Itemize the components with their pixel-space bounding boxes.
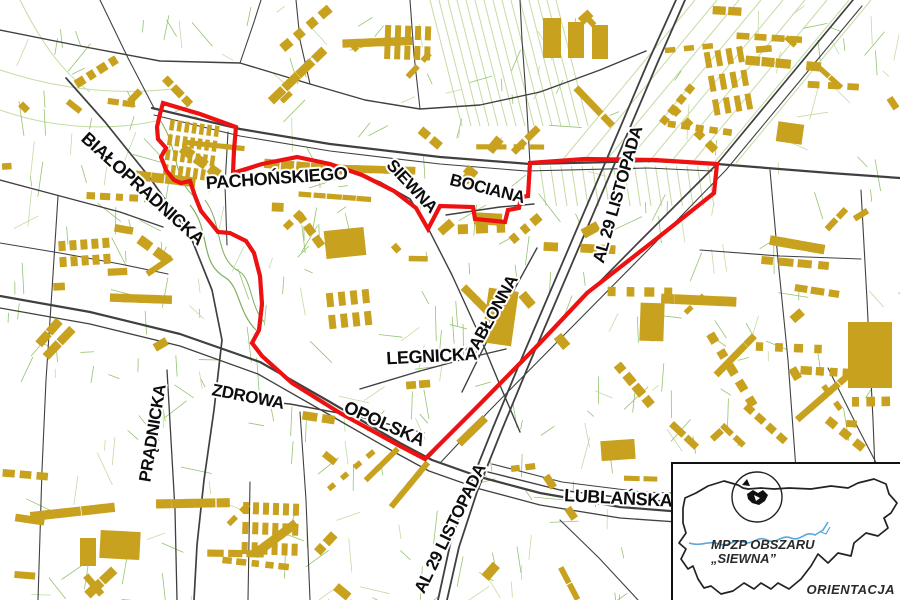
building (736, 32, 749, 39)
building (714, 50, 723, 67)
building (328, 315, 336, 330)
building (734, 95, 743, 112)
building (642, 395, 655, 408)
building (59, 257, 67, 267)
building (14, 571, 35, 580)
building (64, 506, 82, 517)
building (788, 366, 802, 381)
road (167, 370, 177, 600)
building (847, 83, 859, 90)
building (554, 333, 571, 350)
building (394, 45, 400, 59)
building (91, 238, 99, 248)
building (362, 289, 370, 304)
building (511, 465, 520, 472)
building (385, 25, 391, 39)
building (291, 544, 297, 556)
building (327, 482, 336, 491)
building (712, 99, 721, 116)
building (36, 472, 48, 481)
building (458, 224, 469, 234)
building (568, 22, 584, 58)
building (107, 98, 119, 106)
building (661, 294, 675, 304)
building (70, 256, 78, 266)
building (206, 124, 212, 136)
building (340, 313, 348, 328)
building (776, 432, 788, 444)
building (720, 296, 736, 306)
building (322, 451, 338, 465)
building (352, 312, 360, 327)
building (342, 195, 356, 201)
road (248, 482, 250, 600)
building (279, 38, 293, 52)
building (756, 342, 764, 351)
building (429, 136, 443, 150)
building (765, 423, 777, 435)
building (704, 52, 713, 69)
building (252, 522, 258, 534)
building (214, 126, 220, 138)
building (86, 69, 97, 81)
building (667, 120, 676, 128)
building (723, 97, 732, 114)
building (281, 72, 301, 91)
building (838, 427, 852, 440)
building (293, 504, 299, 516)
building (108, 55, 119, 67)
street-label: SIEWNA (383, 156, 442, 217)
building (384, 45, 390, 59)
building (723, 128, 733, 136)
building (298, 191, 311, 197)
building (338, 291, 346, 306)
building (46, 318, 63, 336)
north-tick (742, 479, 750, 486)
building (53, 282, 65, 290)
building (56, 326, 75, 345)
building (2, 469, 15, 478)
building (321, 414, 335, 424)
inset-caption: ORIENTACJA (806, 582, 895, 597)
building (684, 83, 695, 94)
building (95, 503, 115, 514)
building (705, 296, 722, 306)
building (278, 563, 289, 571)
building (775, 58, 791, 69)
building (639, 303, 664, 342)
building (303, 223, 316, 237)
building (74, 75, 87, 88)
building (100, 193, 111, 201)
building (809, 242, 826, 254)
building (312, 234, 326, 248)
building (242, 522, 248, 534)
building (96, 62, 109, 75)
building (108, 268, 128, 276)
building (169, 119, 175, 131)
building (302, 411, 318, 422)
building (437, 219, 455, 236)
building (101, 536, 113, 545)
building (353, 460, 363, 469)
building (622, 372, 636, 387)
inset-title-line1: MPZP OBSZARU (711, 538, 815, 552)
road (300, 412, 310, 600)
building (543, 474, 557, 490)
building (524, 125, 540, 141)
building (324, 227, 367, 259)
street-label: ZDROWA (210, 380, 286, 413)
building (825, 217, 839, 231)
building (810, 286, 825, 295)
building (92, 254, 100, 264)
building (293, 27, 306, 40)
building (406, 381, 417, 390)
building (745, 55, 760, 66)
building (313, 193, 325, 199)
building (710, 428, 724, 442)
building (273, 503, 279, 515)
building (778, 258, 794, 267)
building (828, 289, 839, 298)
street-label: PRĄDNICKA (135, 383, 169, 483)
building (66, 99, 83, 114)
building (587, 99, 604, 116)
building (608, 287, 616, 297)
building (754, 412, 767, 424)
building (735, 379, 748, 393)
building (684, 305, 694, 315)
building (794, 344, 803, 353)
street-label: AL 29 LISTOPADA (411, 461, 490, 596)
building (624, 476, 640, 481)
building (814, 345, 822, 354)
building (881, 397, 890, 407)
building (58, 241, 66, 251)
building (327, 194, 342, 200)
building (716, 348, 728, 360)
building (614, 361, 627, 374)
building (228, 550, 242, 557)
building (181, 95, 193, 107)
building (627, 287, 635, 297)
building (326, 293, 334, 308)
krakow-inset-map (673, 464, 900, 600)
building (425, 26, 431, 40)
building (729, 71, 738, 88)
building (333, 583, 351, 600)
building (631, 383, 646, 398)
building (644, 287, 654, 297)
map-stage: BIAŁOPRADNICKAPACHOŃSKIEGOSIEWNABOCIANAA… (0, 0, 900, 600)
building (825, 416, 839, 429)
building (543, 242, 558, 252)
building (728, 7, 742, 16)
building (509, 233, 520, 245)
building (775, 343, 783, 352)
building (725, 48, 734, 65)
building (69, 240, 77, 250)
building (199, 123, 205, 135)
building (712, 6, 726, 15)
building (156, 499, 171, 508)
building (170, 84, 184, 98)
building (306, 16, 319, 29)
building (564, 506, 578, 521)
building (808, 81, 820, 88)
building (364, 311, 372, 326)
orientation-inset: MPZP OBSZARU „SIEWNA” ORIENTACJA (671, 462, 900, 600)
building (684, 45, 695, 52)
building (350, 290, 358, 305)
building (467, 415, 488, 435)
building (866, 397, 875, 407)
building (80, 239, 88, 249)
building (340, 471, 349, 480)
building (2, 163, 12, 170)
building (365, 449, 375, 459)
building (525, 463, 536, 470)
building (222, 557, 232, 565)
building (691, 295, 706, 305)
building (789, 308, 804, 323)
building (81, 255, 89, 265)
building (253, 502, 259, 514)
building (846, 420, 857, 428)
building (201, 498, 215, 507)
building (829, 368, 837, 377)
building (152, 295, 173, 304)
building (283, 503, 289, 515)
building (761, 57, 775, 67)
building (251, 560, 259, 567)
building (356, 196, 371, 202)
inset-title-line2: „SIEWNA” (711, 552, 815, 566)
building (771, 35, 784, 42)
building (800, 366, 812, 375)
building (702, 43, 713, 50)
building (19, 470, 31, 479)
building (794, 284, 808, 293)
street-label: OPOLSKA (341, 397, 428, 450)
street-label: BOCIANA (448, 170, 527, 207)
building (669, 421, 686, 438)
building (262, 523, 268, 535)
road (38, 196, 58, 600)
building (530, 144, 544, 149)
building (776, 121, 805, 144)
inset-title: MPZP OBSZARU „SIEWNA” (711, 538, 815, 566)
street-label: LEGNICKA (386, 344, 478, 369)
building (281, 543, 287, 555)
building (481, 562, 499, 581)
building (393, 37, 413, 46)
building (853, 208, 869, 221)
building (756, 45, 772, 53)
building (706, 332, 719, 345)
building (174, 135, 180, 147)
building (709, 126, 718, 134)
building (311, 47, 327, 63)
building (665, 47, 676, 54)
building (323, 531, 338, 546)
building (683, 435, 699, 450)
building (519, 223, 530, 234)
building (81, 505, 97, 516)
building (816, 367, 825, 376)
building (265, 561, 274, 568)
building (409, 256, 428, 262)
building (116, 193, 123, 200)
building (848, 322, 892, 388)
building (833, 401, 843, 412)
building (674, 294, 691, 304)
street-label: BIAŁOPRADNICKA (77, 128, 208, 249)
building (217, 498, 230, 507)
building (415, 461, 430, 478)
building (414, 46, 420, 60)
building (114, 224, 134, 235)
building (272, 202, 284, 211)
building (406, 64, 420, 79)
building (518, 291, 535, 309)
building (476, 223, 489, 233)
building (855, 369, 867, 378)
building (676, 94, 687, 105)
building (283, 219, 294, 230)
building (391, 243, 402, 254)
building (99, 566, 117, 584)
building (151, 172, 165, 183)
building (643, 476, 657, 481)
building (836, 207, 848, 220)
building (86, 192, 95, 199)
building (99, 530, 140, 560)
building (404, 46, 410, 60)
building (567, 583, 580, 600)
street-label: LUBLAŃSKA (564, 484, 674, 511)
building (18, 101, 30, 113)
building (103, 254, 111, 264)
building (207, 549, 224, 556)
building (171, 499, 186, 508)
building (102, 238, 110, 248)
building (227, 515, 238, 526)
building (761, 256, 773, 265)
building (529, 213, 542, 226)
building (136, 235, 153, 251)
building (418, 126, 432, 139)
building (317, 5, 332, 20)
building (185, 499, 203, 508)
building (80, 538, 96, 566)
building (852, 397, 859, 407)
building (887, 96, 900, 110)
building (558, 566, 571, 584)
building (543, 18, 561, 58)
building (176, 120, 182, 132)
building (818, 261, 829, 270)
building (162, 75, 174, 87)
building (236, 558, 247, 566)
building (600, 439, 635, 461)
building (263, 503, 269, 515)
building (419, 380, 431, 389)
building (744, 93, 753, 110)
building (818, 66, 831, 78)
building (733, 435, 746, 448)
building (497, 223, 506, 233)
building (740, 70, 749, 87)
building (511, 139, 527, 155)
building (415, 26, 421, 40)
building (754, 34, 766, 41)
building (719, 73, 728, 90)
building (797, 259, 812, 268)
